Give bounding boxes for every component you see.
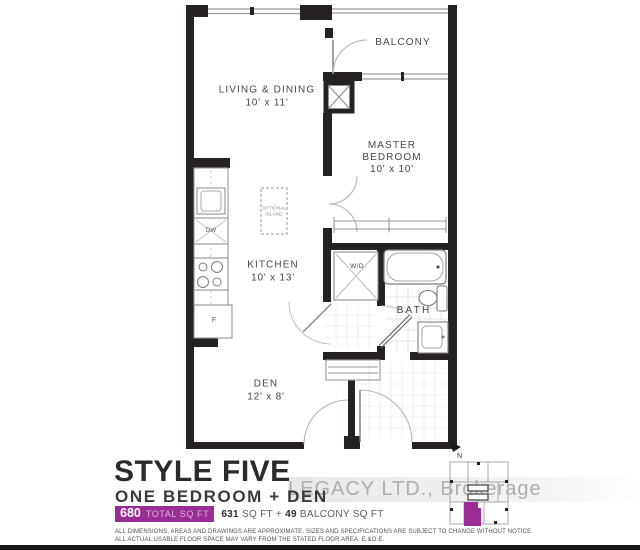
bathtub-basin	[387, 253, 443, 281]
label-optional-island: OPTIONAL ISLAND	[262, 206, 286, 217]
wd-door-leaf	[303, 304, 331, 332]
den-door-arc	[304, 400, 348, 444]
bedroom-door-arcs	[329, 176, 357, 232]
total-area-badge: 680 TOTAL SQ FT	[115, 506, 214, 522]
label-master-bedroom: MASTER BEDROOM 10' x 10'	[362, 140, 421, 176]
label-fridge: F	[212, 315, 216, 328]
kitchen-sink-basin	[201, 191, 221, 211]
vanity-sink	[422, 326, 442, 348]
north-label: N	[457, 453, 462, 460]
label-dishwasher: DW	[206, 225, 217, 238]
kitchen-fixtures	[194, 168, 287, 338]
area-summary-row: 680 TOTAL SQ FT 631 SQ FT + 49 BALCONY S…	[115, 506, 384, 522]
bottom-border-bar	[0, 545, 640, 550]
total-area-value: 680	[120, 507, 141, 520]
floor-plan-page: { "palette": { "accent": "#992d95", "wal…	[0, 0, 640, 550]
total-area-unit: TOTAL SQ FT	[146, 509, 209, 519]
plan-style-name: STYLE FIVE	[114, 455, 291, 489]
disclaimer-line2: ALL ACTUAL USABLE FLOOR SPACE MAY VARY F…	[115, 537, 533, 545]
vanity-faucet	[442, 336, 445, 339]
label-washer-dryer: W/D	[350, 261, 364, 274]
washer-dryer-box	[334, 252, 378, 300]
bedroom-closet	[334, 217, 446, 233]
toilet-tank	[437, 286, 447, 311]
toilet-bowl	[419, 291, 437, 306]
north-arrow-icon: N	[450, 442, 462, 460]
shaft-box	[326, 83, 352, 111]
label-kitchen: KITCHEN 10' x 13'	[247, 260, 299, 285]
label-balcony: BALCONY	[375, 37, 431, 50]
label-den: DEN 12' x 8'	[247, 379, 284, 404]
entry-closet	[326, 360, 380, 380]
building-key-plan: N	[444, 438, 524, 533]
wd-door-arc	[289, 302, 331, 344]
plan-unit-type: ONE BEDROOM + DEN	[115, 487, 328, 507]
bath-door-leaf	[379, 315, 412, 349]
label-bath: BATH	[397, 305, 432, 318]
bath-fixtures	[384, 250, 448, 353]
entry-door-arc	[360, 390, 412, 442]
unit-highlight	[464, 502, 481, 526]
bathtub-drain	[436, 265, 439, 268]
elevator-cores	[468, 485, 488, 500]
balcony-door-arc	[333, 40, 367, 74]
floor-plan-drawing	[0, 0, 640, 550]
area-breakdown: 631 SQ FT + 49 BALCONY SQ FT	[221, 509, 383, 520]
label-living-dining: LIVING & DINING 10' x 11'	[219, 85, 316, 110]
